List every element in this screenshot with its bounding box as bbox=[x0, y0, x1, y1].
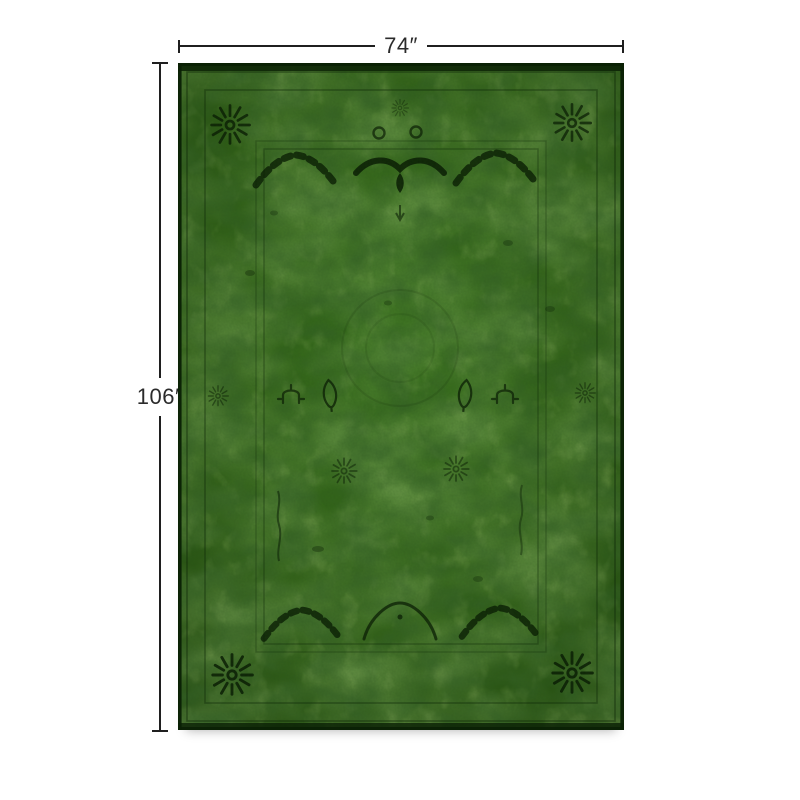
dimension-line-segment bbox=[180, 45, 375, 47]
dimension-line-segment bbox=[427, 45, 622, 47]
dimension-line-segment bbox=[159, 64, 161, 378]
height-dimension-label: 106″ bbox=[137, 386, 184, 408]
dimension-end-tick-bottom bbox=[152, 730, 168, 732]
dimension-end-tick-right bbox=[622, 40, 624, 53]
rug-product-image bbox=[178, 63, 624, 730]
dimension-line-segment bbox=[159, 416, 161, 730]
width-dimension-annotation: 74″ bbox=[178, 34, 624, 58]
rug-artwork bbox=[178, 63, 624, 730]
product-image-canvas: 74″ 106″ bbox=[0, 0, 800, 800]
width-dimension-label: 74″ bbox=[384, 35, 418, 57]
rug-edges bbox=[178, 63, 624, 730]
